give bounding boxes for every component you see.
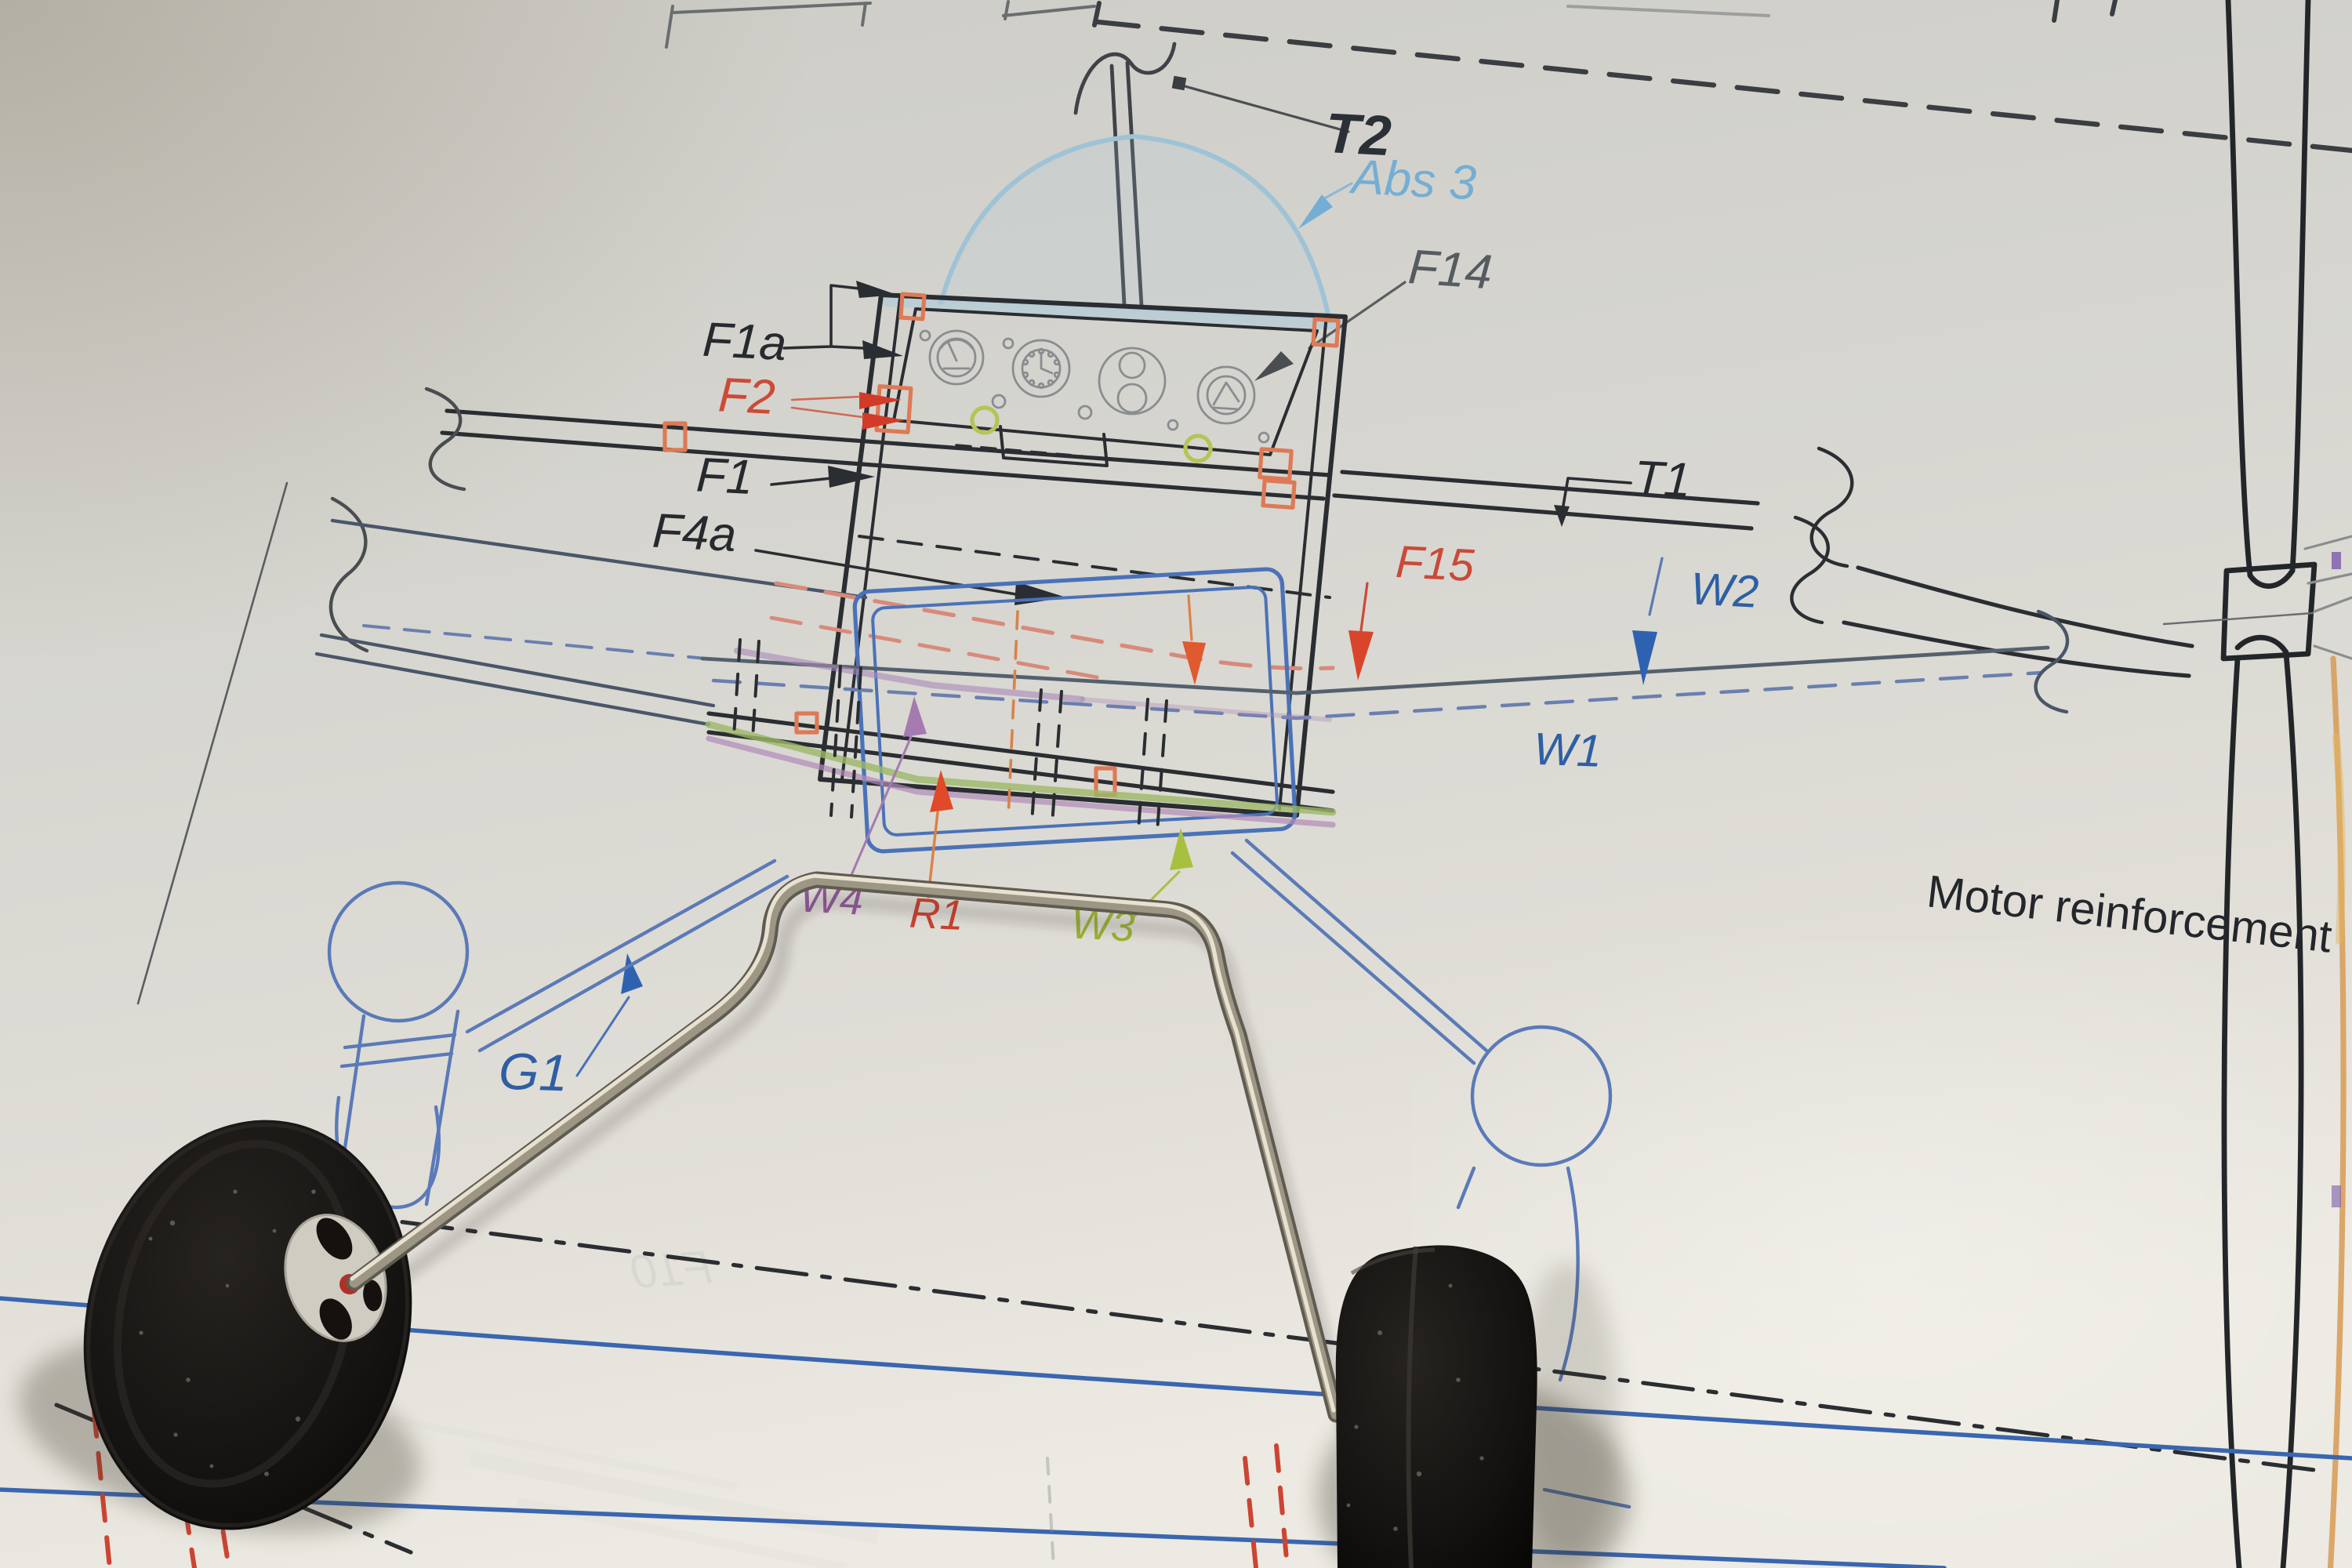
label-abs3: Abs 3 (1348, 150, 1478, 210)
label-f1: F1 (695, 448, 754, 505)
label-f15: F15 (1395, 536, 1476, 591)
bleed-through-text: F10 (630, 1240, 714, 1298)
label-f14: F14 (1406, 240, 1494, 299)
label-f4a: F4a (651, 504, 737, 562)
plan-scene: F10 (0, 0, 2352, 1568)
label-g1: G1 (498, 1041, 569, 1102)
label-w2: W2 (1690, 563, 1760, 617)
label-f1a: F1a (701, 313, 787, 371)
label-w1: W1 (1533, 724, 1602, 777)
right-wheel (1336, 1245, 1537, 1568)
label-t1: T1 (1632, 451, 1692, 508)
photo-of-model-aircraft-plan: F10 (0, 0, 2352, 1568)
label-f2: F2 (717, 368, 776, 425)
gauge-2 (1013, 340, 1069, 397)
